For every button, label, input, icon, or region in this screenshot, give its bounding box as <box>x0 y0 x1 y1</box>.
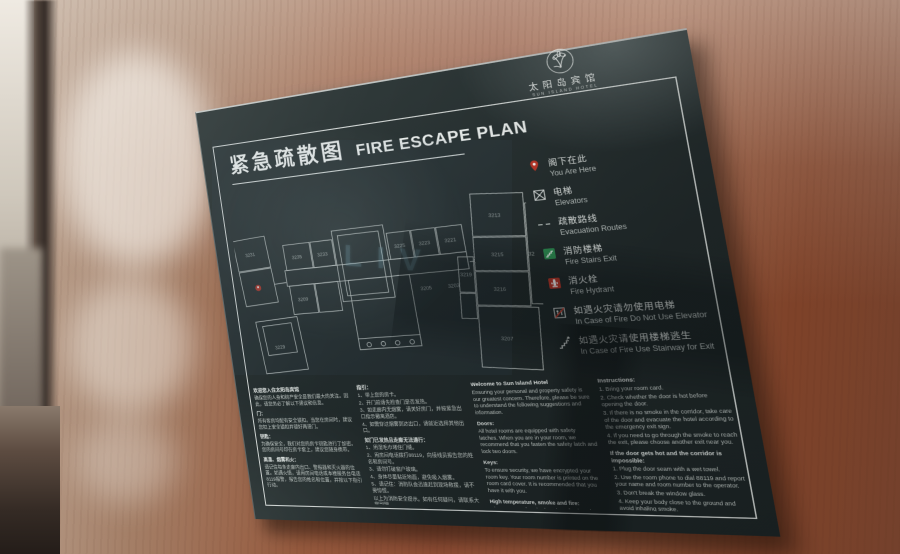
route-dashes-icon <box>536 217 552 231</box>
list-item: 2、用房间电话拨打88119，向接线员报告您的姓名和房间号。 <box>366 452 474 466</box>
list-item: 4、如需穿过烟雾到达出口，请就近选择其他出口。 <box>362 420 470 434</box>
room-label: 3216 <box>493 286 507 292</box>
window-reflection <box>76 418 176 503</box>
room-label: 3203 <box>447 282 460 289</box>
column-en-welcome: Welcome to Sun Island Hotel Ensuring you… <box>470 377 610 510</box>
column-en-instructions: Instructions: 1. Bring your room card. 2… <box>597 373 754 514</box>
room-label: 3207 <box>501 335 515 341</box>
section-heading: If the door gets hot and the corridor is… <box>610 450 745 465</box>
paragraph: Ensuring your personal and property safe… <box>471 387 593 417</box>
no-elevator-icon <box>551 306 567 320</box>
section-heading: Doors: <box>476 419 595 427</box>
logo-emblem-icon <box>543 45 577 77</box>
paragraph: 确保您的人身和财产安全是我们最大的关注。因此，请您务必了解以下建议和信息。 <box>254 393 351 408</box>
room-label: 3229 <box>275 344 287 351</box>
info-columns: 欢迎您入住太阳岛宾馆 确保您的人身和财产安全是我们最大的关注。因此，请您务必了解… <box>253 373 754 514</box>
list-item: 1、用湿毛巾堵住门缝。 <box>365 445 472 452</box>
room-label: 3233 <box>317 251 329 258</box>
fire-escape-sign: 太阳岛宾馆 SUN ISLAND HOTEL 紧急疏散图 FIRE ESCAPE… <box>195 28 780 537</box>
legend-item-fire-stairs: 消防楼梯 Fire Stairs Exit <box>541 233 702 268</box>
paragraph: 所有客房均配有安全锁扣。当您在房间时，建议您扣上安全锁扣并锁好两道门。 <box>257 417 354 431</box>
section-heading: 高温、烟雾和火： <box>263 457 360 464</box>
background-object <box>0 248 42 423</box>
legend-label-en: Fire Hydrant <box>570 285 615 296</box>
photo-scene: 太阳岛宾馆 SUN ISLAND HOTEL 紧急疏散图 FIRE ESCAPE… <box>0 0 900 554</box>
list-item: 2. Use the room phone to dial 88119 and … <box>614 474 750 490</box>
room-label: 3213 <box>488 212 501 218</box>
paragraph: 请记住每条走廊内出口、警报器和灭火器的位置。如遇火情，请用房间电话或本楼服务台电… <box>264 464 364 490</box>
paragraph: All hotel rooms are equipped with safety… <box>478 427 601 455</box>
list-item: 3、请勿打破窗户玻璃。 <box>369 466 477 474</box>
room-label: 3215 <box>491 251 504 257</box>
floor-plan-center-wing: 3235 3233 3225 3223 3221 3209 3205 3203 <box>279 215 482 353</box>
list-item: 1. Plug the door seam with a wet towel. <box>612 466 746 474</box>
photo-watermark: LIV <box>344 238 436 280</box>
paragraph: To ensure security, we have encrypted yo… <box>484 467 607 496</box>
room-label: 3205 <box>420 285 433 292</box>
list-item: 3. If there is no smoke in the corridor,… <box>603 408 739 431</box>
window-reflection <box>68 278 193 413</box>
stairway-exit-icon <box>557 336 573 350</box>
legend-item-no-elevator: 如遇火灾请勿使用电梯 In Case of Fire Do Not Use El… <box>551 296 713 327</box>
list-item: 5、请记住：消防队会迅速赶到现场救援，请不要惊慌。 <box>371 481 480 496</box>
room-label: 3221 <box>444 236 457 243</box>
background-object <box>0 406 60 554</box>
section-heading: 钥匙： <box>260 433 357 440</box>
paragraph: 为确保安全，我们对您的房卡钥匙进行了加密。您的房间号印在房卡套上，建议您随身携带… <box>261 441 359 454</box>
list-item: 4. If you need to go through the smoke t… <box>606 431 741 446</box>
room-label: 3231 <box>245 251 256 258</box>
you-are-here-pin-icon <box>527 159 543 173</box>
list-item: 2. Check whether the door is hot before … <box>600 391 734 408</box>
elevator-icon <box>531 188 547 202</box>
column-cn-instructions: 指引： 1、带上您的房卡。 2、开门前请先检查门是否发热。 3、如走廊内无烟雾，… <box>356 381 482 507</box>
fire-hydrant-icon <box>546 276 562 290</box>
legend-item-fire-hydrant: 消火栓 Fire Hydrant <box>546 264 707 297</box>
legend-item-use-stairway: 如遇火灾请使用楼梯逃生 In Case of Fire Use Stairway… <box>556 327 719 356</box>
legend-item-evacuation-routes: 疏散路线 Evacuation Routes <box>536 202 696 239</box>
window-reflection <box>60 52 215 267</box>
legend-label-en: Elevators <box>554 195 588 207</box>
fire-stairs-icon <box>541 247 557 261</box>
room-label: 3219 <box>460 271 473 277</box>
section-heading: Keys: <box>483 459 603 467</box>
column-cn-welcome: 欢迎您入住太阳岛宾馆 确保您的人身和财产安全是我们最大的关注。因此，请您务必了解… <box>253 385 367 504</box>
room-label: 3209 <box>297 296 309 302</box>
you-are-here-marker-icon <box>255 284 262 291</box>
list-item: 3、如走廊内无烟雾，请关好房门，并按紧急出口指示撤离酒店。 <box>360 405 468 420</box>
room-label: 3235 <box>291 254 303 261</box>
section-heading: 如门已发热且走廊无法通行： <box>364 437 471 444</box>
